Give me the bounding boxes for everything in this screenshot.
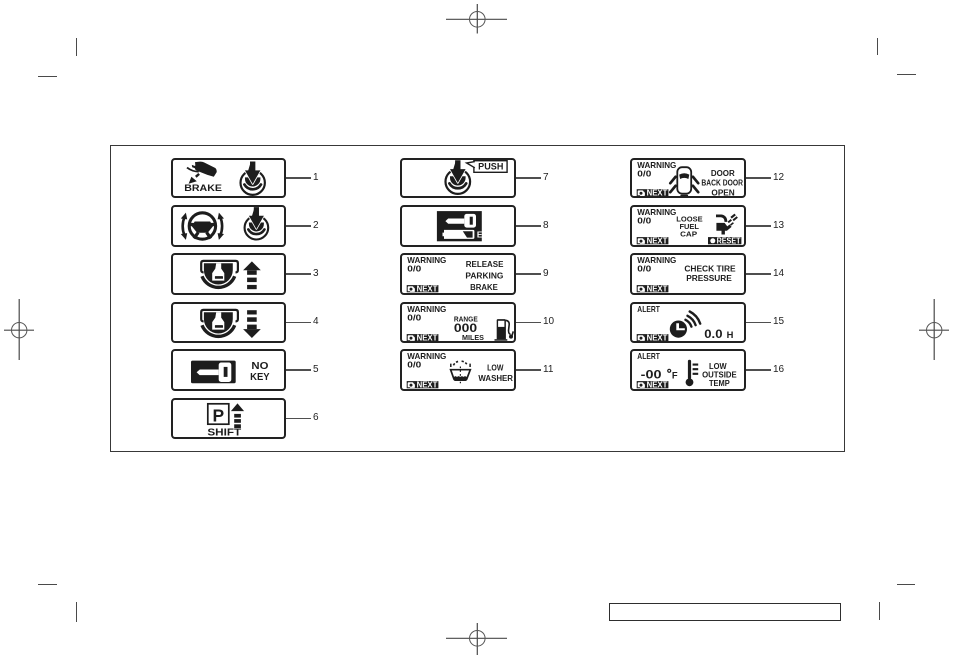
svg-text:MILES: MILES xyxy=(462,333,484,341)
svg-text:0/0: 0/0 xyxy=(407,265,422,274)
svg-text:BRAKE: BRAKE xyxy=(470,283,498,292)
svg-text:P: P xyxy=(212,405,224,425)
svg-text:0/0: 0/0 xyxy=(407,313,422,322)
svg-text:ALERT: ALERT xyxy=(637,352,660,361)
svg-text:0.0: 0.0 xyxy=(704,327,722,341)
svg-text:RELEASE: RELEASE xyxy=(466,260,504,269)
svg-text:PRESSURE: PRESSURE xyxy=(686,274,732,283)
svg-text:OPEN: OPEN xyxy=(711,188,735,196)
svg-text:0/0: 0/0 xyxy=(637,169,652,178)
svg-text:NEXT: NEXT xyxy=(417,381,438,389)
svg-text:NEXT: NEXT xyxy=(647,237,668,245)
svg-text:ALERT: ALERT xyxy=(637,305,660,314)
svg-text:SHIFT: SHIFT xyxy=(207,427,242,437)
svg-text:0/0: 0/0 xyxy=(637,217,652,226)
svg-text:DOOR: DOOR xyxy=(711,168,735,177)
svg-text:WASHER: WASHER xyxy=(478,374,513,383)
svg-text:E: E xyxy=(477,231,483,240)
svg-text:NEXT: NEXT xyxy=(647,381,668,389)
svg-text:CHECK TIRE: CHECK TIRE xyxy=(684,265,735,274)
svg-text:KEY: KEY xyxy=(250,372,270,383)
svg-text:NEXT: NEXT xyxy=(417,333,438,341)
svg-text:CAP: CAP xyxy=(680,230,697,239)
svg-text:BRAKE: BRAKE xyxy=(184,183,222,193)
svg-text:-00: -00 xyxy=(641,368,662,382)
svg-text:BACK DOOR: BACK DOOR xyxy=(701,178,743,187)
svg-text:TEMP: TEMP xyxy=(709,379,730,388)
svg-text:NEXT: NEXT xyxy=(417,285,438,293)
svg-text:0/0: 0/0 xyxy=(637,265,652,274)
svg-text:LOW: LOW xyxy=(487,364,504,373)
svg-text:0/0: 0/0 xyxy=(407,361,422,370)
svg-text:F: F xyxy=(672,370,678,381)
svg-text:NEXT: NEXT xyxy=(647,333,668,341)
svg-text:NEXT: NEXT xyxy=(647,188,668,196)
svg-text:PUSH: PUSH xyxy=(478,161,503,171)
svg-text:H: H xyxy=(727,329,734,340)
svg-text:NO: NO xyxy=(251,361,268,372)
svg-text:OUTSIDE: OUTSIDE xyxy=(702,371,737,380)
svg-text:PARKING: PARKING xyxy=(465,272,503,281)
svg-text:RESET: RESET xyxy=(717,237,741,245)
svg-text:NEXT: NEXT xyxy=(647,285,668,293)
